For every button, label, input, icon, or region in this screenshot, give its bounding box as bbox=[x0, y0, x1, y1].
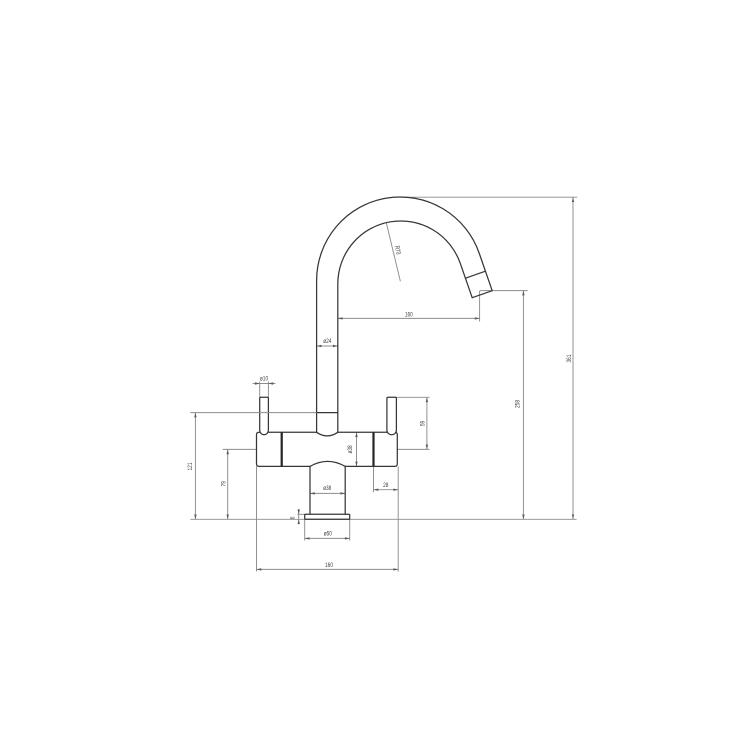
svg-text:79: 79 bbox=[221, 481, 228, 486]
svg-text:ø38: ø38 bbox=[348, 445, 355, 453]
svg-text:6: 6 bbox=[290, 516, 297, 519]
svg-text:ø10: ø10 bbox=[260, 376, 269, 383]
svg-text:ø38: ø38 bbox=[323, 485, 331, 492]
svg-text:ø50: ø50 bbox=[324, 531, 333, 538]
svg-text:160: 160 bbox=[325, 562, 334, 569]
svg-text:ø24: ø24 bbox=[323, 338, 332, 345]
svg-text:28: 28 bbox=[383, 482, 388, 489]
svg-text:59: 59 bbox=[420, 421, 427, 426]
svg-text:361: 361 bbox=[566, 355, 573, 363]
svg-text:121: 121 bbox=[188, 463, 195, 471]
svg-text:160: 160 bbox=[405, 312, 414, 319]
svg-text:258: 258 bbox=[515, 400, 522, 408]
